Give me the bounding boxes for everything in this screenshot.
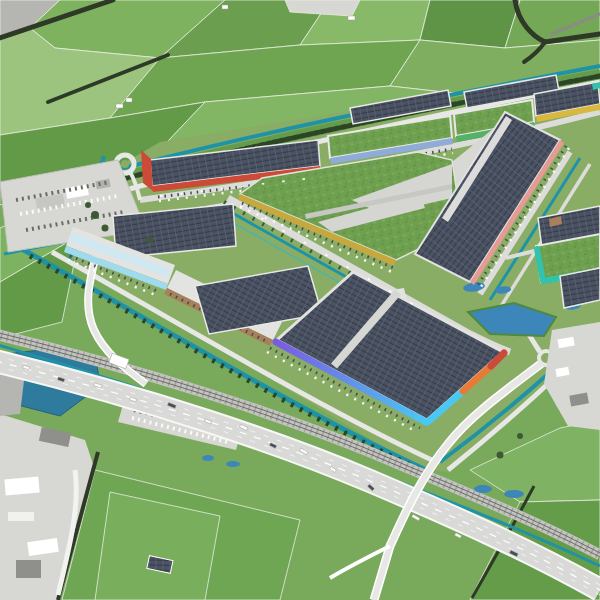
pond	[504, 490, 524, 498]
farm-building	[126, 98, 132, 102]
tree	[102, 225, 109, 232]
field	[420, 0, 520, 48]
aerial-render-stage	[0, 0, 600, 600]
farm-building	[222, 5, 228, 9]
farm-building	[116, 104, 123, 108]
farm-building	[348, 16, 355, 20]
tree	[517, 433, 523, 439]
tree	[91, 211, 99, 219]
tree	[147, 237, 153, 243]
industrial-shed	[4, 477, 39, 496]
pond	[226, 461, 240, 467]
roundabout-island	[121, 160, 129, 168]
tree	[85, 202, 91, 208]
industrial-patch	[16, 560, 41, 578]
aerial-render	[0, 0, 600, 600]
tree	[497, 452, 504, 459]
industrial-shed	[8, 512, 34, 521]
pond	[474, 485, 492, 493]
pond	[202, 455, 214, 461]
